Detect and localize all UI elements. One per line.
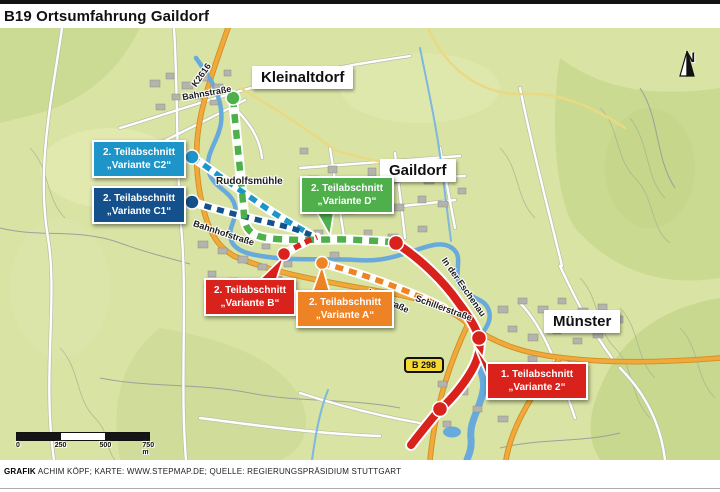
callout-variante-a: 2. Teilabschnitt „Variante A“ bbox=[296, 290, 394, 328]
scale-bar-ticks: 0 250 500 750 m bbox=[16, 441, 150, 451]
callout-line1: 2. Teilabschnitt bbox=[208, 284, 292, 297]
town-label-muenster: Münster bbox=[544, 310, 620, 333]
credits-body: ACHIM KÖPF; KARTE: WWW.STEPMAP.DE; QUELL… bbox=[38, 467, 401, 476]
callout-line1: 2. Teilabschnitt bbox=[300, 296, 390, 309]
street-label-rudolfsmuehle: Rudolfsmühle bbox=[216, 176, 283, 187]
callout-line2: „Variante D“ bbox=[304, 195, 390, 208]
scale-bar: 0 250 500 750 m bbox=[16, 432, 150, 451]
node-variante-2-mid bbox=[472, 331, 487, 346]
map-canvas bbox=[0, 28, 720, 460]
road-badge-b298: B 298 bbox=[404, 357, 444, 373]
callout-variante-d: 2. Teilabschnitt „Variante D“ bbox=[300, 176, 394, 214]
callout-line2: „Variante A“ bbox=[300, 309, 390, 322]
infographic-page: B19 Ortsumfahrung Gaildorf bbox=[0, 0, 720, 492]
callout-line1: 1. Teilabschnitt bbox=[490, 368, 584, 381]
node-variante-c2 bbox=[185, 150, 199, 164]
credits-text: GRAFIK ACHIM KÖPF; KARTE: WWW.STEPMAP.DE… bbox=[0, 460, 720, 476]
credits-bar: GRAFIK ACHIM KÖPF; KARTE: WWW.STEPMAP.DE… bbox=[0, 460, 720, 492]
callout-line1: 2. Teilabschnitt bbox=[304, 182, 390, 195]
node-variante-c1 bbox=[185, 195, 199, 209]
scale-tick-750: 750 m bbox=[142, 442, 154, 456]
callout-line1: 2. Teilabschnitt bbox=[96, 192, 182, 205]
node-junction bbox=[389, 236, 404, 251]
callout-line2: „Variante 2“ bbox=[490, 381, 584, 394]
compass: N bbox=[679, 50, 701, 65]
callout-line2: „Variante C1“ bbox=[96, 205, 182, 218]
town-label-kleinaltdorf: Kleinaltdorf bbox=[252, 66, 353, 89]
callout-line2: „Variante C2“ bbox=[96, 159, 182, 172]
map: K2616 Bahnstraße Rudolfsmühle Bahnhofstr… bbox=[0, 28, 720, 460]
callout-variante-c1: 2. Teilabschnitt „Variante C1“ bbox=[92, 186, 186, 224]
node-variante-b bbox=[278, 248, 291, 261]
callout-variante-c2: 2. Teilabschnitt „Variante C2“ bbox=[92, 140, 186, 178]
callout-line1: 2. Teilabschnitt bbox=[96, 146, 182, 159]
scale-bar-segments bbox=[16, 432, 150, 441]
callout-variante-b: 2. Teilabschnitt „Variante B“ bbox=[204, 278, 296, 316]
page-title: B19 Ortsumfahrung Gaildorf bbox=[0, 4, 720, 25]
scale-tick-250: 250 bbox=[55, 442, 67, 449]
node-variante-2-low bbox=[433, 402, 448, 417]
scale-tick-0: 0 bbox=[16, 442, 20, 449]
credits-label: GRAFIK bbox=[4, 467, 36, 476]
callout-variante-2: 1. Teilabschnitt „Variante 2“ bbox=[486, 362, 588, 400]
callout-line2: „Variante B“ bbox=[208, 297, 292, 310]
node-variante-a bbox=[316, 257, 329, 270]
scale-tick-500: 500 bbox=[100, 442, 112, 449]
north-arrow-icon bbox=[679, 50, 695, 78]
